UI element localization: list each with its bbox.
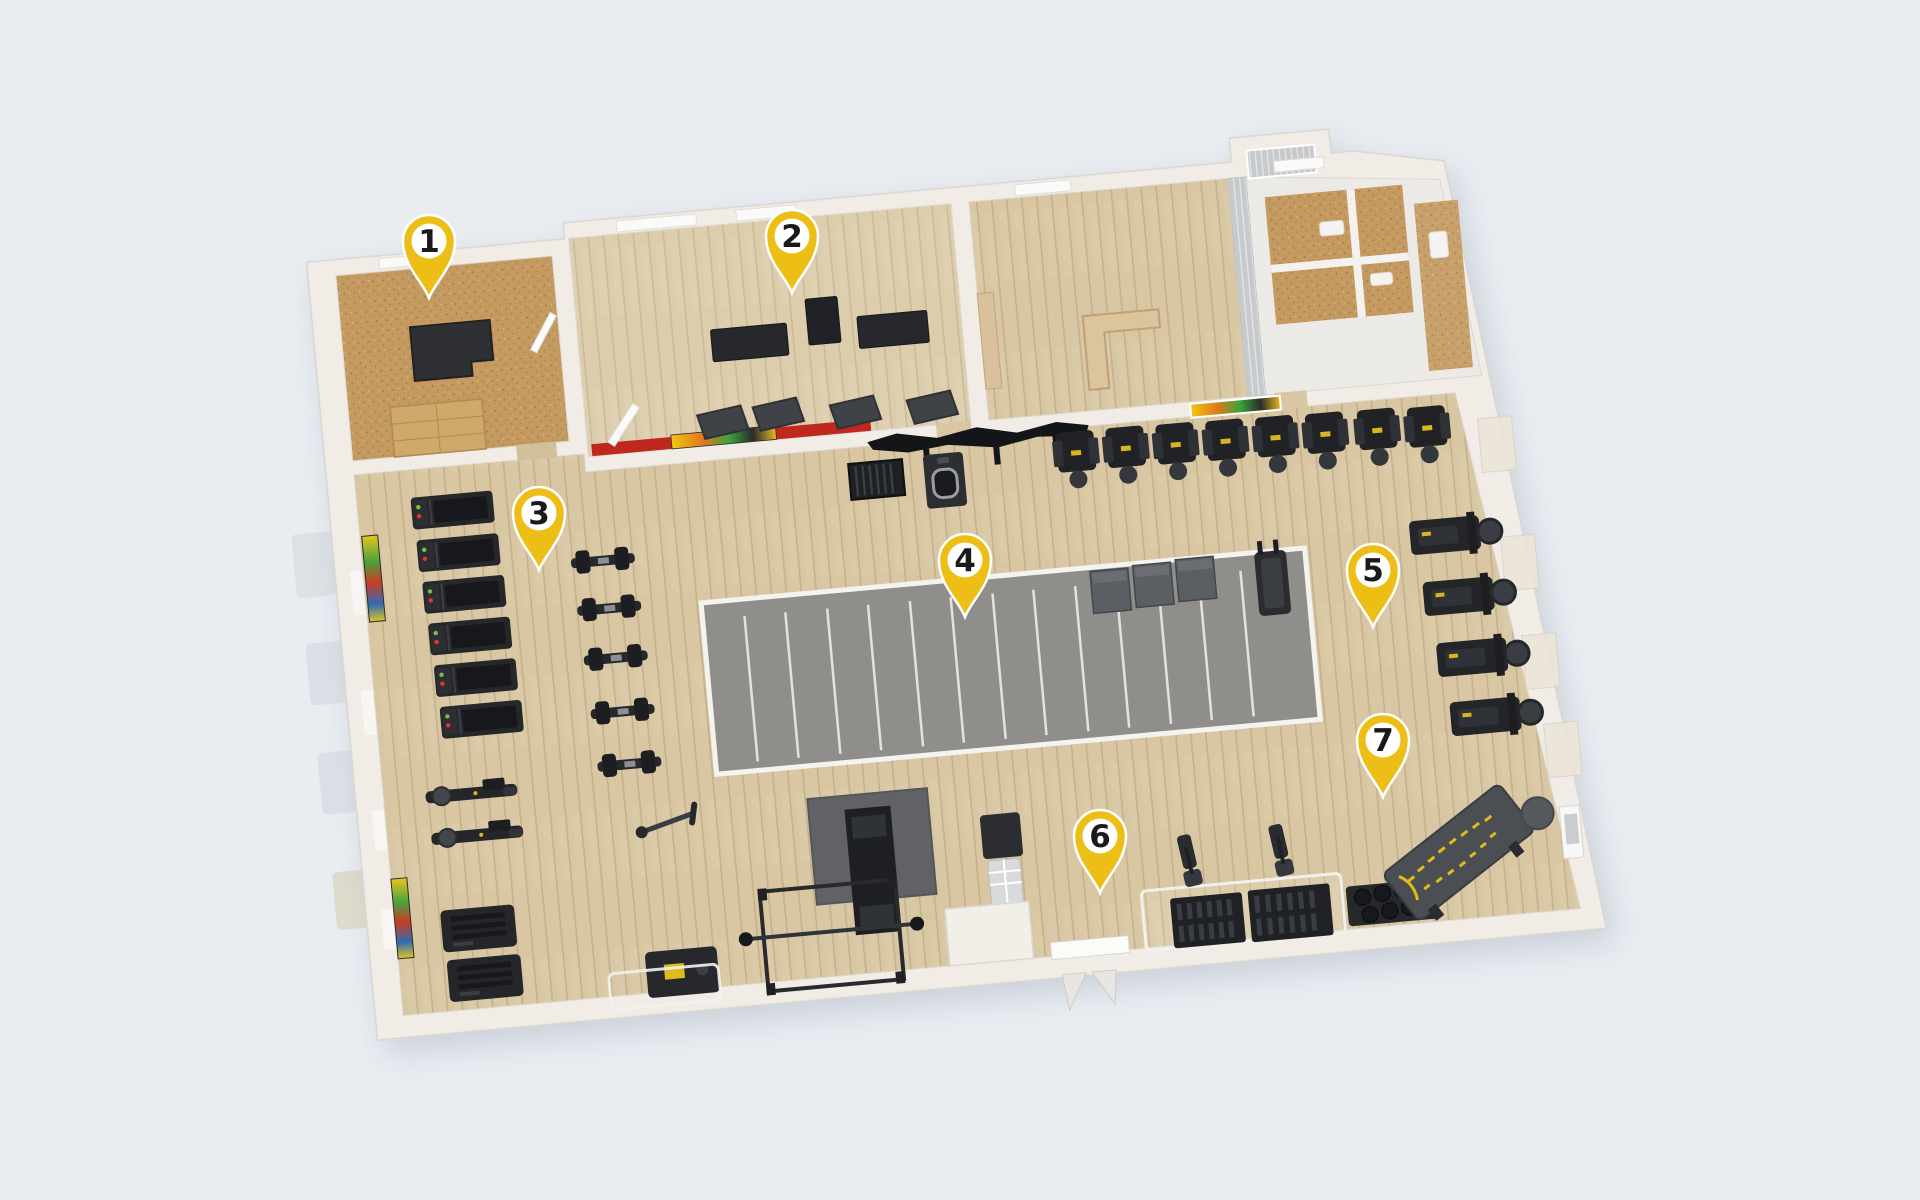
pin-number: 4	[954, 543, 976, 579]
pin-number: 7	[1372, 723, 1394, 759]
leg-machine-yellow	[645, 946, 721, 998]
changing-fixture-3	[1429, 231, 1449, 259]
pin-number: 1	[418, 224, 440, 260]
gym-floorplan-scene: 1 2 3 4 5 6 7	[0, 0, 1920, 1200]
barbell-storage-rack	[848, 459, 905, 500]
entrance-vestibule	[945, 901, 1034, 965]
office-wood-counter	[390, 399, 486, 457]
pin-number: 3	[528, 496, 550, 532]
changing-fixture	[1319, 220, 1344, 236]
pin-number: 6	[1089, 819, 1111, 855]
building	[263, 111, 1609, 1077]
ab-mat-station	[923, 452, 968, 509]
pin-number: 2	[781, 219, 803, 255]
east-corner-door	[1559, 805, 1584, 859]
pin-number: 5	[1362, 553, 1384, 589]
floorplan-canvas: 1 2 3 4 5 6 7	[0, 0, 1920, 1200]
changing-fixture-2	[1370, 272, 1393, 286]
